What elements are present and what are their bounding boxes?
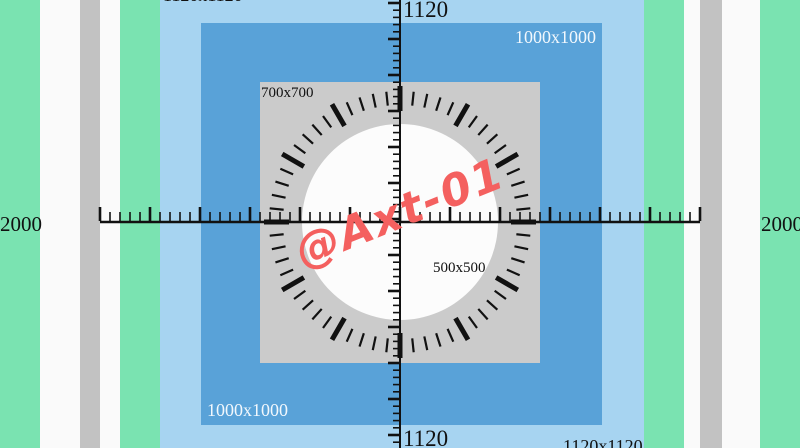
outer-square-label-bottom: 1120x1120 xyxy=(563,437,643,448)
blue-square-label-bottom: 1000x1000 xyxy=(207,401,288,419)
horizontal-ruler-label-left: 2000 xyxy=(0,214,42,235)
calibration-chart: 1120x1120 1120x1120 1120 1120 2000 2000 … xyxy=(0,0,800,448)
circle-label: 500x500 xyxy=(433,261,486,276)
horizontal-ruler-label-right: 2000 xyxy=(761,214,800,235)
blue-square-label-top: 1000x1000 xyxy=(515,28,596,46)
vertical-ruler-label-top: 1120 xyxy=(403,0,448,21)
gray-square-label: 700x700 xyxy=(261,86,314,101)
vertical-ruler-label-bottom: 1120 xyxy=(403,427,448,448)
outer-square-label-top: 1120x1120 xyxy=(163,0,243,4)
